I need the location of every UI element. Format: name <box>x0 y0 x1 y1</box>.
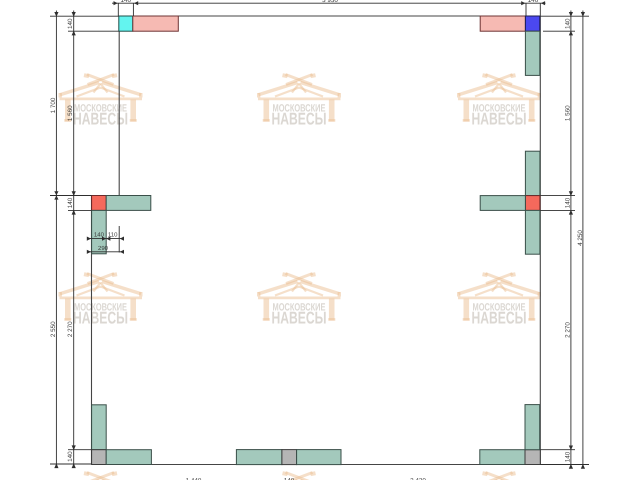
svg-text:290: 290 <box>98 245 109 252</box>
svg-text:2 550: 2 550 <box>50 321 57 337</box>
svg-text:4 250: 4 250 <box>577 230 584 246</box>
svg-text:140: 140 <box>565 451 572 462</box>
svg-text:140: 140 <box>67 451 74 462</box>
svg-text:1 700: 1 700 <box>50 97 57 113</box>
svg-text:2 270: 2 270 <box>67 321 74 337</box>
svg-text:140: 140 <box>67 197 74 208</box>
svg-text:140: 140 <box>565 18 572 29</box>
svg-text:140: 140 <box>565 197 572 208</box>
svg-text:3 930: 3 930 <box>322 0 338 4</box>
svg-text:140: 140 <box>67 18 74 29</box>
svg-text:140: 140 <box>528 0 539 4</box>
svg-text:110: 110 <box>108 232 118 239</box>
svg-text:1 560: 1 560 <box>565 105 572 121</box>
svg-text:140: 140 <box>94 232 105 239</box>
svg-text:1 560: 1 560 <box>67 105 74 121</box>
svg-text:140: 140 <box>121 0 132 4</box>
svg-text:2 270: 2 270 <box>565 322 572 338</box>
